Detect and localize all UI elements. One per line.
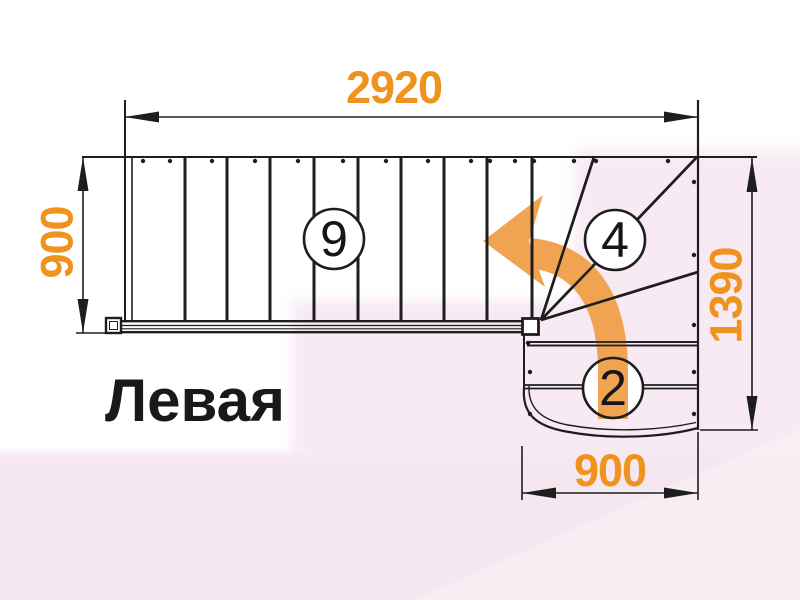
drawing-title: Левая (75, 370, 315, 432)
staircase-drawing-page: 2920 900 1390 900 9 4 2 Левая (0, 0, 800, 600)
dimension-lines (76, 117, 758, 500)
stair-linework (76, 100, 758, 500)
bottom-flight-step-count: 2 (583, 358, 643, 418)
dimension-arrowheads (78, 112, 758, 499)
winder-step-count: 4 (585, 210, 645, 270)
dimension-left-label: 900 (35, 183, 80, 303)
straight-flight-step-count: 9 (304, 209, 364, 269)
dimension-right-label: 1390 (704, 236, 749, 356)
dimension-bottom-label: 900 (510, 448, 710, 493)
stringer-band (120, 321, 522, 332)
dimension-top-label: 2920 (294, 65, 494, 110)
